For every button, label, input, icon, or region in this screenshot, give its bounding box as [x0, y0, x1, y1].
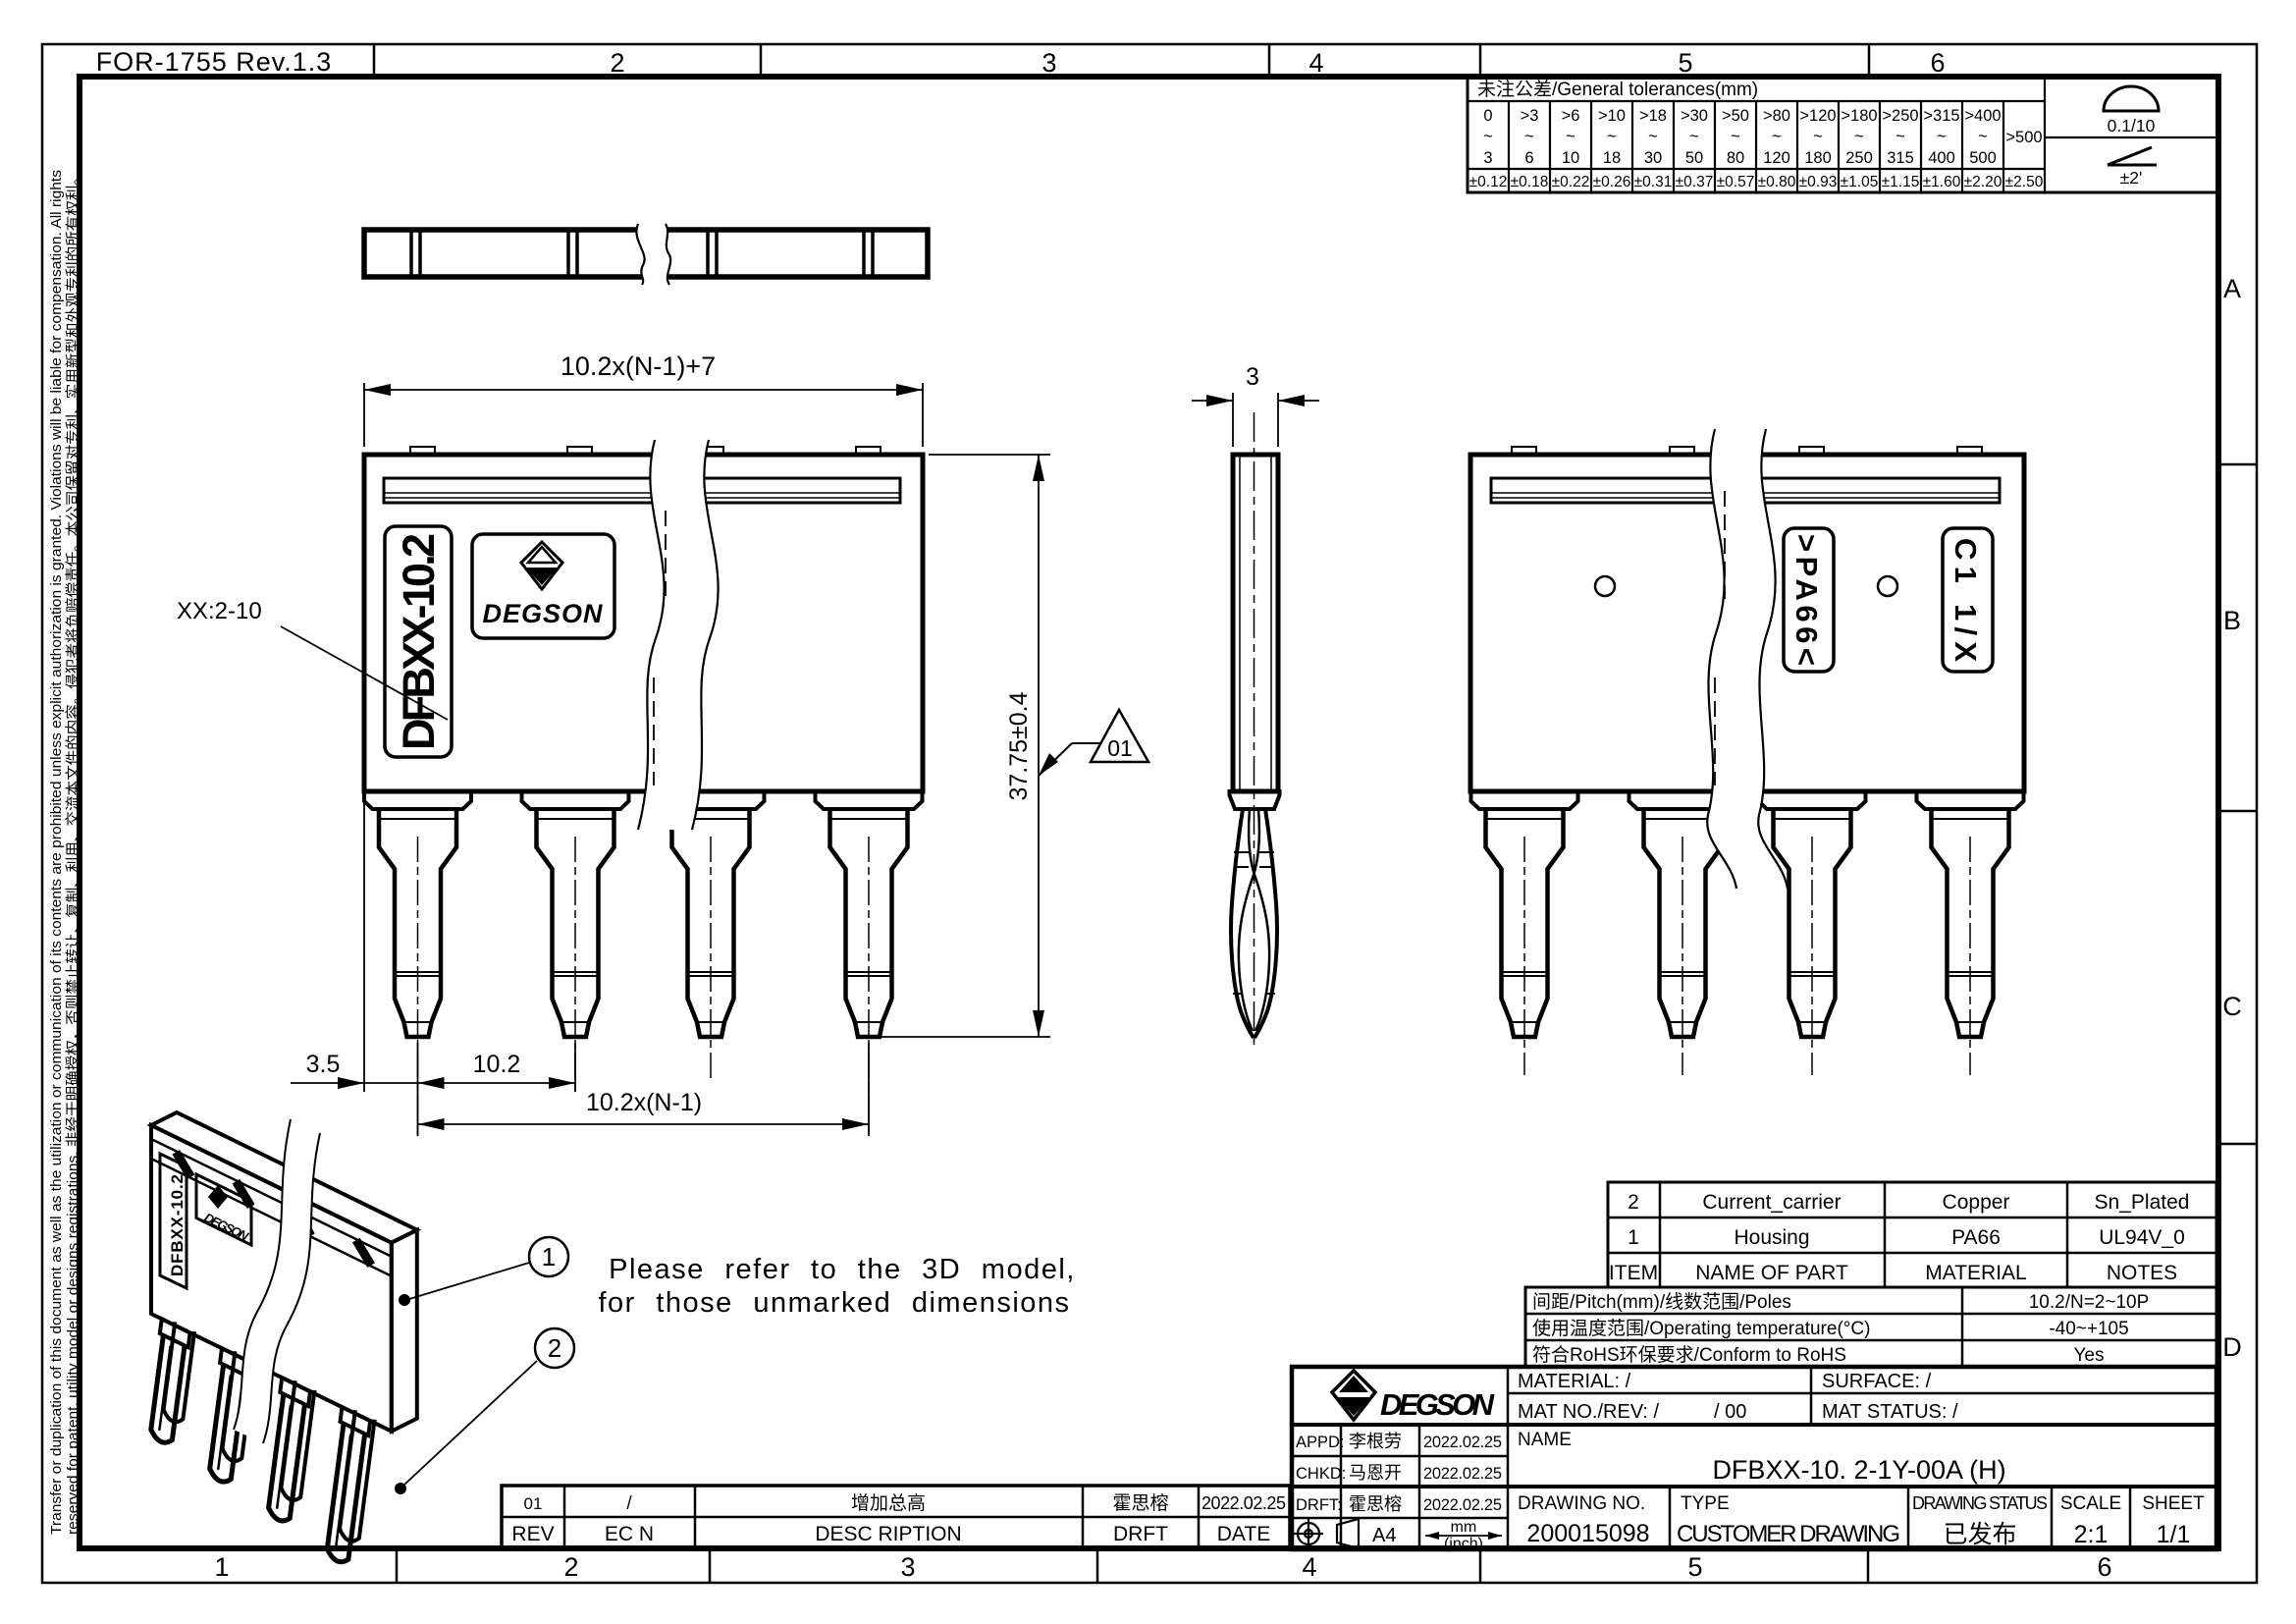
- svg-text:DRAWING STATUS: DRAWING STATUS: [1912, 1493, 2048, 1513]
- svg-text:CUSTOMER DRAWING: CUSTOMER DRAWING: [1677, 1521, 1900, 1547]
- svg-text:~: ~: [1813, 128, 1823, 145]
- svg-text:2: 2: [548, 1333, 561, 1363]
- svg-text:EC N: EC N: [605, 1523, 654, 1545]
- svg-text:3: 3: [1483, 149, 1492, 167]
- svg-text:NOTES: NOTES: [2107, 1262, 2177, 1284]
- svg-text:3: 3: [1041, 48, 1056, 78]
- svg-text:±0.57: ±0.57: [1717, 174, 1755, 190]
- svg-text:10.2x(N-1): 10.2x(N-1): [586, 1089, 702, 1116]
- svg-text:01: 01: [1107, 735, 1133, 761]
- svg-text:200015098: 200015098: [1526, 1520, 1649, 1547]
- svg-text:MATERIAL: /: MATERIAL: /: [1518, 1371, 1631, 1392]
- svg-text:1: 1: [542, 1242, 556, 1272]
- svg-text:NAME OF PART: NAME OF PART: [1695, 1262, 1848, 1284]
- svg-text:SHEET: SHEET: [2142, 1493, 2205, 1514]
- svg-text:±0.31: ±0.31: [1634, 174, 1673, 190]
- svg-text:10.2/N=2~10P: 10.2/N=2~10P: [2029, 1292, 2150, 1313]
- svg-text:DEGSON: DEGSON: [482, 599, 603, 628]
- svg-text:250: 250: [1845, 149, 1873, 167]
- svg-text:±2.50: ±2.50: [2005, 174, 2044, 190]
- svg-text:±0.22: ±0.22: [1552, 174, 1590, 190]
- svg-text:DRFT:: DRFT:: [1296, 1496, 1342, 1514]
- svg-text:5: 5: [1687, 1552, 1702, 1582]
- svg-text:李根劳: 李根劳: [1349, 1432, 1402, 1451]
- svg-text:18: 18: [1603, 149, 1621, 167]
- svg-text:DRFT: DRFT: [1113, 1523, 1168, 1545]
- svg-text:DATE: DATE: [1217, 1523, 1270, 1545]
- svg-text:D: D: [2222, 1332, 2242, 1362]
- svg-text:400: 400: [1928, 149, 1955, 167]
- svg-text:Sn_Plated: Sn_Plated: [2095, 1191, 2190, 1214]
- svg-text:>250: >250: [1882, 107, 1918, 125]
- svg-text:1: 1: [1628, 1226, 1639, 1249]
- svg-text:1: 1: [214, 1552, 229, 1582]
- svg-text:>3: >3: [1521, 107, 1539, 125]
- svg-text:A: A: [2223, 274, 2241, 303]
- svg-text:-40~+105: -40~+105: [2049, 1319, 2128, 1339]
- svg-text:Yes: Yes: [2074, 1345, 2105, 1366]
- svg-text:UL94V_0: UL94V_0: [2099, 1226, 2185, 1249]
- svg-text:CHKD:: CHKD:: [1296, 1465, 1346, 1483]
- svg-text:TYPE: TYPE: [1681, 1493, 1730, 1514]
- svg-text:3: 3: [900, 1552, 915, 1582]
- svg-text:3.5: 3.5: [306, 1051, 341, 1078]
- svg-text:>315: >315: [1923, 107, 1959, 125]
- svg-text:>80: >80: [1763, 107, 1790, 125]
- svg-text:50: 50: [1685, 149, 1703, 167]
- svg-text:>120: >120: [1799, 107, 1836, 125]
- svg-text:>500: >500: [2005, 129, 2042, 146]
- svg-text:马恩开: 马恩开: [1349, 1463, 1402, 1483]
- svg-text:2022.02.25: 2022.02.25: [1423, 1465, 1502, 1483]
- svg-text:/ 00: / 00: [1714, 1401, 1746, 1423]
- svg-text:reserved for patent, utility m: reserved for patent, utility model or de…: [64, 170, 81, 1535]
- svg-text:~: ~: [1689, 128, 1699, 145]
- svg-text:符合RoHS环保要求/Conform to RoHS: 符合RoHS环保要求/Conform to RoHS: [1532, 1344, 1846, 1366]
- svg-text:10.2x(N-1)+7: 10.2x(N-1)+7: [561, 352, 716, 381]
- svg-text:PA66: PA66: [1951, 1226, 2001, 1249]
- svg-text:2022.02.25: 2022.02.25: [1423, 1496, 1502, 1514]
- svg-text:±0.93: ±0.93: [1799, 174, 1838, 190]
- svg-text:4: 4: [1302, 1552, 1316, 1582]
- svg-text:>10: >10: [1598, 107, 1626, 125]
- svg-text:Current_carrier: Current_carrier: [1702, 1191, 1841, 1214]
- svg-text:(inch): (inch): [1444, 1536, 1483, 1552]
- svg-text:DEGSON: DEGSON: [1380, 1387, 1495, 1422]
- svg-text:4: 4: [1308, 48, 1323, 78]
- svg-text:2: 2: [563, 1552, 578, 1582]
- svg-text:~: ~: [1772, 128, 1782, 145]
- svg-text:~: ~: [1524, 128, 1534, 145]
- svg-text:B: B: [2223, 606, 2241, 635]
- svg-text:>18: >18: [1639, 107, 1667, 125]
- svg-text:1/1: 1/1: [2157, 1521, 2191, 1548]
- svg-text:±1.60: ±1.60: [1923, 174, 1961, 190]
- svg-text:MAT NO./REV: /: MAT NO./REV: /: [1518, 1401, 1660, 1423]
- svg-text:DFBXX-10. 2-1Y-00A (H): DFBXX-10. 2-1Y-00A (H): [1712, 1455, 2005, 1485]
- svg-text:37.75±0.4: 37.75±0.4: [1005, 691, 1033, 800]
- svg-text:REV: REV: [511, 1523, 554, 1545]
- svg-text:使用温度范围/Operating temperature(°: 使用温度范围/Operating temperature(°C): [1532, 1318, 1870, 1339]
- svg-text:2022.02.25: 2022.02.25: [1201, 1493, 1286, 1513]
- svg-text:80: 80: [1727, 149, 1744, 167]
- svg-text:DRAWING NO.: DRAWING NO.: [1518, 1493, 1645, 1514]
- svg-text:DFBXX-10.2: DFBXX-10.2: [394, 533, 444, 750]
- svg-text:霍思榕: 霍思榕: [1112, 1492, 1168, 1514]
- svg-text:Copper: Copper: [1943, 1191, 2010, 1214]
- svg-text:10: 10: [1562, 149, 1579, 167]
- svg-text:~: ~: [1483, 128, 1493, 145]
- svg-text:Please refer to the 3D model,: Please refer to the 3D model,: [609, 1254, 1076, 1285]
- svg-text:mm: mm: [1451, 1519, 1477, 1536]
- svg-text:增加总高: 增加总高: [851, 1492, 926, 1514]
- svg-text:MATERIAL: MATERIAL: [1925, 1262, 2026, 1284]
- svg-text:2022.02.25: 2022.02.25: [1423, 1434, 1502, 1451]
- svg-text:2:1: 2:1: [2074, 1521, 2109, 1548]
- svg-text:Housing: Housing: [1734, 1226, 1809, 1249]
- svg-text:±1.05: ±1.05: [1841, 174, 1879, 190]
- svg-text:~: ~: [1896, 128, 1905, 145]
- svg-text:6: 6: [2097, 1552, 2111, 1582]
- svg-text:6: 6: [1930, 48, 1945, 78]
- svg-text:SURFACE: /: SURFACE: /: [1822, 1371, 1932, 1392]
- svg-text:~: ~: [1648, 128, 1658, 145]
- svg-text:~: ~: [1854, 128, 1864, 145]
- svg-text:120: 120: [1763, 149, 1790, 167]
- svg-text:±0.18: ±0.18: [1511, 174, 1549, 190]
- svg-text:±2': ±2': [2120, 168, 2143, 188]
- svg-text:FOR-1755 Rev.1.3: FOR-1755 Rev.1.3: [96, 47, 333, 77]
- svg-text:2: 2: [610, 48, 624, 78]
- svg-text:5: 5: [1678, 48, 1692, 78]
- svg-text:for those unmarked dimensions: for those unmarked dimensions: [598, 1287, 1070, 1319]
- svg-text:>30: >30: [1681, 107, 1708, 125]
- svg-text:NAME: NAME: [1518, 1430, 1572, 1450]
- svg-text:已发布: 已发布: [1943, 1521, 2016, 1548]
- svg-text:~: ~: [1731, 128, 1740, 145]
- svg-text:>400: >400: [1964, 107, 2001, 125]
- svg-text:霍思榕: 霍思榕: [1349, 1494, 1402, 1514]
- svg-text:3: 3: [1246, 363, 1259, 391]
- svg-text:/: /: [626, 1493, 632, 1514]
- svg-text:±1.15: ±1.15: [1882, 174, 1920, 190]
- svg-text:未注公差/General tolerances(mm): 未注公差/General tolerances(mm): [1477, 79, 1758, 100]
- svg-text:±0.80: ±0.80: [1758, 174, 1796, 190]
- svg-text:~: ~: [1978, 128, 1988, 145]
- svg-text:SCALE: SCALE: [2060, 1493, 2121, 1514]
- svg-text:±0.26: ±0.26: [1593, 174, 1631, 190]
- svg-text:DESC RIPTION: DESC RIPTION: [815, 1523, 961, 1545]
- svg-text:01: 01: [524, 1494, 543, 1513]
- svg-text:0.1/10: 0.1/10: [2108, 116, 2156, 135]
- svg-text:±0.12: ±0.12: [1469, 174, 1508, 190]
- svg-text:MAT STATUS: /: MAT STATUS: /: [1822, 1401, 1958, 1423]
- svg-text:6: 6: [1524, 149, 1533, 167]
- svg-text:315: 315: [1887, 149, 1914, 167]
- svg-text:Transfer or duplication of thi: Transfer or duplication of this document…: [48, 170, 65, 1535]
- svg-text:~: ~: [1607, 128, 1617, 145]
- svg-text:±2.20: ±2.20: [1964, 174, 2002, 190]
- svg-text:>50: >50: [1722, 107, 1749, 125]
- svg-text:C: C: [2222, 992, 2242, 1021]
- svg-text:~: ~: [1937, 128, 1947, 145]
- svg-text:0: 0: [1483, 107, 1492, 125]
- svg-text:>6: >6: [1562, 107, 1580, 125]
- svg-text:ITEM: ITEM: [1609, 1262, 1658, 1284]
- svg-text:2: 2: [1628, 1191, 1639, 1214]
- svg-text:30: 30: [1644, 149, 1662, 167]
- svg-text:间距/Pitch(mm)/线数范围/Poles: 间距/Pitch(mm)/线数范围/Poles: [1532, 1291, 1791, 1313]
- svg-text:XX:2-10: XX:2-10: [177, 598, 262, 624]
- svg-text:DFBXX-10.2: DFBXX-10.2: [168, 1174, 187, 1276]
- svg-text:10.2: 10.2: [473, 1051, 521, 1078]
- svg-text:>180: >180: [1841, 107, 1877, 125]
- svg-text:500: 500: [1969, 149, 1997, 167]
- svg-text:180: 180: [1804, 149, 1832, 167]
- svg-text:APPD:: APPD:: [1296, 1434, 1345, 1451]
- svg-text:±0.37: ±0.37: [1676, 174, 1714, 190]
- svg-text:A4: A4: [1372, 1525, 1396, 1546]
- svg-text:~: ~: [1566, 128, 1575, 145]
